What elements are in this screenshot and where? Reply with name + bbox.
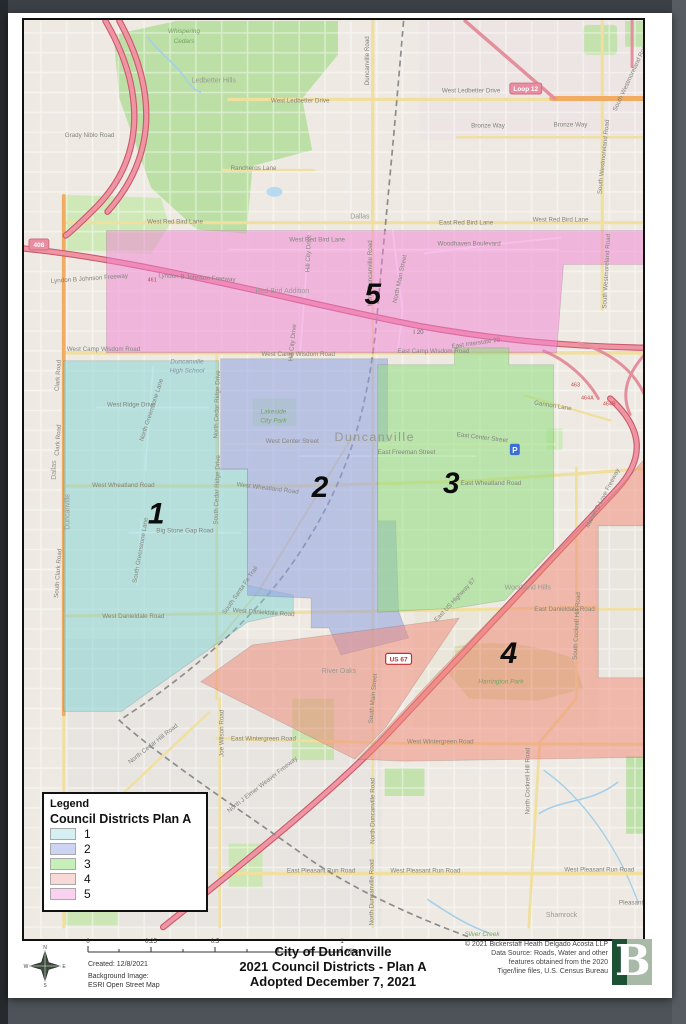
map-label: Red Bird Addition: [256, 288, 310, 295]
map-label: Pleasant: [619, 899, 643, 906]
map-label: Dallas: [51, 460, 58, 480]
parking-icon: P: [510, 444, 520, 455]
firm-logo-letter: B: [615, 939, 651, 985]
viewer-right-strip: [672, 0, 686, 1024]
legend-item: 3: [50, 856, 200, 871]
district-number: 4: [500, 637, 518, 670]
map-label: Duncanville Road: [364, 36, 371, 86]
scale-tick-label: 0: [86, 939, 90, 945]
map-label: High School: [170, 368, 205, 375]
map-label: East Camp Wisdom Road: [397, 348, 469, 355]
map-label: West Wintergreen Road: [407, 738, 474, 745]
exit-number-label: 464B: [603, 401, 616, 407]
created-text: Created: 12/8/2021: [88, 961, 148, 968]
map-label: East Wintergreen Road: [231, 735, 296, 742]
viewer-top-strip: [8, 0, 686, 13]
copyright-line: Data Source: Roads, Water and other: [491, 950, 609, 957]
map-label: Bronze Way: [471, 122, 506, 129]
map-title-line2: 2021 Council Districts - Plan A: [178, 959, 488, 974]
map-label: Cedars: [174, 38, 196, 45]
legend-subtitle: Council Districts Plan A: [50, 812, 200, 826]
legend-item-label: 5: [84, 887, 91, 901]
map-label: West Red Bird Lane: [289, 237, 345, 244]
map-label: North Cockrell Hill Road: [525, 747, 532, 814]
legend-item-label: 1: [84, 827, 91, 841]
route-shield-label: US 67: [390, 656, 408, 663]
map-label: Duncanville: [170, 359, 204, 366]
district-number: 3: [443, 467, 460, 500]
svg-text:N: N: [43, 945, 47, 951]
map-label: Whispering: [168, 28, 201, 35]
map-label: West Danieldale Road: [102, 613, 165, 620]
map-label: City Park: [260, 417, 287, 424]
map-label: Harrington Park: [478, 679, 524, 686]
map-title-line3: Adopted December 7, 2021: [178, 974, 488, 989]
map-label: Woodhaven Boulevard: [438, 241, 502, 248]
map-label: West Pleasant Run Road: [390, 867, 461, 874]
route-shield-label: Loop 12: [513, 86, 538, 93]
district-number: 2: [311, 471, 329, 504]
legend-item: 5: [50, 886, 200, 901]
copyright-line: Tiger/line files, U.S. Census Bureau: [497, 968, 608, 975]
legend-item-label: 2: [84, 842, 91, 856]
map-label: West Pleasant Run Road: [564, 866, 635, 873]
map-label: Grady Niblo Road: [65, 132, 115, 139]
legend-items: 1 2 3 4 5: [50, 826, 200, 901]
copyright-line: features obtained from the 2020: [509, 959, 608, 966]
map-label: Woodland Hills: [505, 584, 552, 591]
exit-number-label: 464A: [581, 396, 594, 402]
map-label: West Red Bird Lane: [533, 217, 589, 224]
svg-text:W: W: [24, 964, 29, 970]
legend-item: 1: [50, 826, 200, 841]
map-label: West Center Street: [266, 438, 319, 445]
map-label: Duncanville: [334, 430, 415, 444]
exit-number-label: 463: [571, 383, 580, 389]
map-label: West Ledbetter Drive: [271, 97, 330, 104]
map-title-block: City of Duncanville 2021 Council Distric…: [178, 944, 488, 989]
route-shield: US 67: [386, 653, 412, 664]
background-image-value: ESRI Open Street Map: [88, 982, 160, 989]
map-label: West Ledbetter Drive: [442, 88, 501, 95]
map-label: East Pleasant Run Road: [287, 867, 356, 874]
map-label: East Red Bird Lane: [439, 220, 494, 227]
map-label: Lakeside: [260, 408, 286, 415]
map-label: Ledbetter Hills: [192, 78, 237, 85]
background-image-label: Background Image:: [88, 973, 149, 980]
map-label: Bronze Way: [554, 121, 589, 128]
route-shield: Loop 12: [510, 83, 542, 94]
map-label: West Camp Wisdom Road: [67, 346, 141, 353]
svg-text:E: E: [62, 964, 66, 970]
svg-text:P: P: [512, 446, 518, 455]
map-label: West Camp Wisdom Road: [261, 351, 335, 358]
map-label: North Duncanville Road: [369, 859, 376, 926]
legend-item: 4: [50, 871, 200, 886]
legend-swatch: [50, 828, 76, 840]
document-page: WhisperingCedarsLedbetter HillsWest Ledb…: [8, 13, 672, 998]
svg-text:S: S: [43, 983, 47, 989]
district-number: 1: [148, 498, 165, 531]
legend-swatch: [50, 873, 76, 885]
district-number: 5: [364, 278, 381, 311]
map-label: Shamrock: [546, 912, 578, 919]
map-label: River Oaks: [322, 668, 357, 675]
viewer-left-strip: [0, 0, 8, 1024]
legend-item-label: 4: [84, 872, 91, 886]
viewer-window: WhisperingCedarsLedbetter HillsWest Ledb…: [0, 0, 686, 1024]
legend-box: Legend Council Districts Plan A 1 2 3 4: [42, 792, 208, 912]
route-shield: 408: [29, 239, 49, 250]
map-label: Silver Creek: [465, 931, 501, 938]
legend-swatch: [50, 858, 76, 870]
map-label: West Red Bird Lane: [147, 219, 203, 226]
map-label: Hill City Drive: [304, 234, 312, 272]
map-label: East Danieldale Road: [534, 606, 595, 613]
legend-swatch: [50, 843, 76, 855]
map-label: East Wheatland Road: [461, 480, 522, 487]
scale-tick-label: 0.25: [145, 939, 157, 945]
map-label: Dallas: [350, 214, 370, 221]
legend-item: 2: [50, 841, 200, 856]
map-label: Duncanville: [65, 494, 72, 530]
legend-item-label: 3: [84, 857, 91, 871]
map-label: Joe Wilson Road: [219, 709, 226, 757]
route-shield-label: 408: [34, 242, 45, 249]
map-label: West Wheatland Road: [92, 482, 155, 489]
compass-rose-icon: N E S W: [24, 945, 67, 989]
legend-title: Legend: [50, 798, 200, 810]
map-label: North Duncanville Road: [370, 777, 377, 844]
legend-swatch: [50, 888, 76, 900]
exit-number-label: 461: [148, 277, 157, 283]
exit-number-label: I 20: [413, 329, 424, 336]
map-title-line1: City of Duncanville: [178, 944, 488, 959]
map-label: East Freeman Street: [378, 449, 436, 456]
firm-logo: B: [612, 939, 652, 985]
map-label: Big Stone Gap Road: [156, 528, 214, 535]
map-label: Rancheros Lane: [231, 165, 277, 172]
